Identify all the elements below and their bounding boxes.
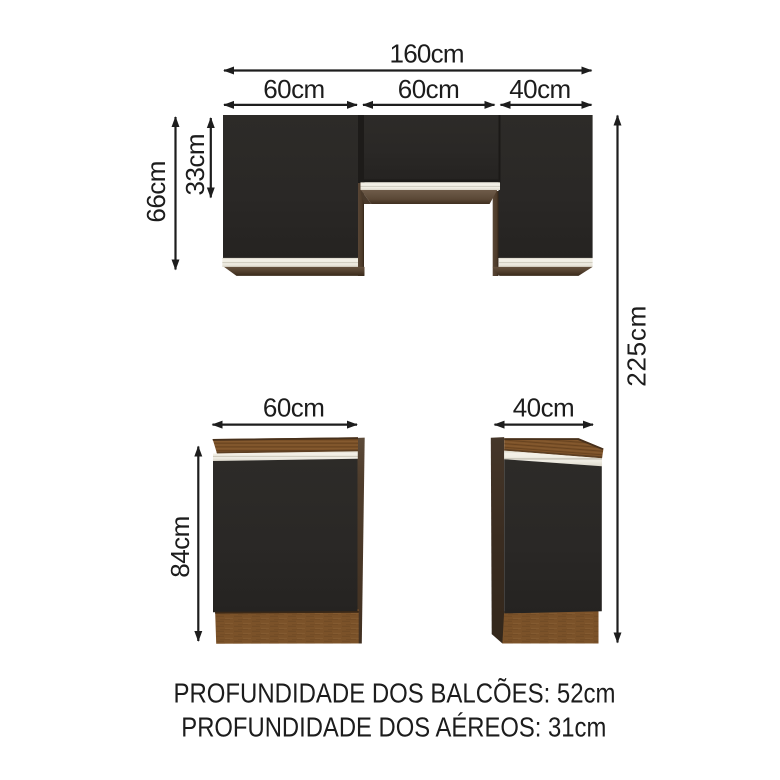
svg-text:84cm: 84cm bbox=[165, 516, 195, 578]
svg-text:160cm: 160cm bbox=[390, 38, 465, 68]
svg-text:225cm: 225cm bbox=[622, 306, 652, 387]
svg-text:PROFUNDIDADE DOS AÉREOS: 31cm: PROFUNDIDADE DOS AÉREOS: 31cm bbox=[181, 712, 606, 743]
svg-text:PROFUNDIDADE DOS BALCÕES: 52cm: PROFUNDIDADE DOS BALCÕES: 52cm bbox=[174, 678, 616, 709]
svg-text:60cm: 60cm bbox=[263, 74, 325, 104]
svg-text:33cm: 33cm bbox=[180, 134, 210, 196]
svg-text:66cm: 66cm bbox=[141, 161, 171, 223]
svg-text:40cm: 40cm bbox=[513, 393, 575, 423]
svg-text:40cm: 40cm bbox=[509, 74, 571, 104]
svg-text:60cm: 60cm bbox=[263, 393, 325, 423]
svg-text:60cm: 60cm bbox=[398, 74, 460, 104]
